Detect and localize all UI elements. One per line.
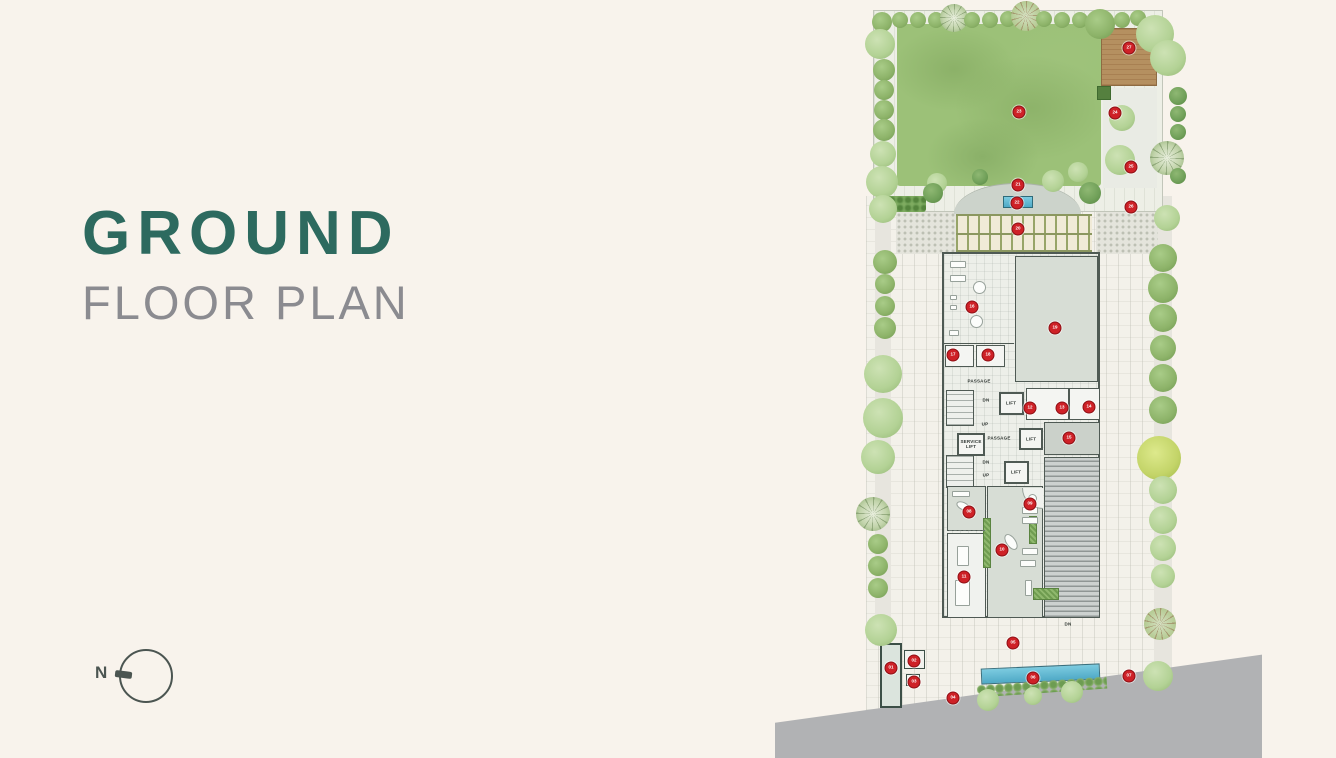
legend-marker: 13	[1056, 402, 1069, 415]
legend-marker: 07	[1123, 670, 1136, 683]
tree-icon	[1150, 535, 1176, 561]
title-line2: FLOOR PLAN	[82, 279, 410, 326]
tree-icon	[982, 12, 998, 28]
tree-icon	[923, 183, 943, 203]
room-label: DN	[1065, 621, 1072, 626]
gym-equipment	[950, 295, 957, 300]
tree-icon	[865, 29, 895, 59]
tree-icon	[1079, 182, 1101, 204]
tree-icon	[1149, 244, 1177, 272]
lounge-sofa	[952, 491, 970, 497]
tree-icon	[1149, 396, 1177, 424]
tree-icon	[1169, 87, 1187, 105]
lobby-sofa	[1022, 548, 1038, 555]
floor-plan: 0102030405060708091011121314151617181920…	[770, 0, 1290, 758]
room-label: DN	[983, 459, 990, 464]
tree-icon	[892, 12, 908, 28]
tree-icon	[875, 274, 895, 294]
legend-marker: 12	[1024, 402, 1037, 415]
tree-icon	[1154, 205, 1180, 231]
room-label: LIFT	[1011, 469, 1021, 474]
room-label: PASSAGE	[967, 378, 990, 383]
tree-icon	[1068, 162, 1088, 182]
legend-marker: 11	[958, 571, 971, 584]
lobby-console	[1025, 580, 1032, 596]
planter-box	[1097, 86, 1111, 100]
staircase-upper	[946, 390, 974, 426]
legend-marker: 08	[963, 506, 976, 519]
north-compass: N	[95, 646, 179, 706]
tree-icon	[873, 119, 895, 141]
tree-icon	[977, 689, 999, 711]
legend-marker: 16	[966, 301, 979, 314]
stone-paving-left	[896, 212, 956, 254]
treadmill	[950, 261, 966, 268]
gym-equipment	[950, 305, 957, 310]
pergola-beam	[956, 233, 1092, 235]
tree-icon	[1144, 608, 1176, 640]
legend-marker: 17	[947, 349, 960, 362]
office-table	[957, 546, 969, 566]
security-cabin	[880, 643, 902, 708]
legend-marker: 10	[996, 544, 1009, 557]
tree-icon	[1150, 40, 1186, 76]
tree-icon	[875, 296, 895, 316]
legend-marker: 27	[1123, 42, 1136, 55]
page-title: GROUND FLOOR PLAN	[82, 203, 410, 326]
gym-table	[973, 281, 986, 294]
room-label: UP	[983, 472, 990, 477]
legend-marker: 26	[1125, 201, 1138, 214]
legend-marker: 20	[1012, 223, 1025, 236]
tree-icon	[1149, 364, 1177, 392]
room-label: DN	[983, 397, 990, 402]
tree-icon	[868, 578, 888, 598]
legend-marker: 06	[1027, 672, 1040, 685]
tree-icon	[866, 166, 898, 198]
tree-icon	[1054, 12, 1070, 28]
tree-icon	[1143, 661, 1173, 691]
tree-icon	[873, 250, 897, 274]
gym-equipment	[949, 330, 959, 336]
legend-marker: 23	[1013, 106, 1026, 119]
tree-icon	[861, 440, 895, 474]
legend-marker: 24	[1109, 107, 1122, 120]
tree-icon	[863, 398, 903, 438]
legend-marker: 21	[1012, 179, 1025, 192]
tree-icon	[1170, 106, 1186, 122]
compass-needle-icon	[115, 670, 133, 679]
tree-icon	[1149, 476, 1177, 504]
tree-icon	[865, 614, 897, 646]
tree-icon	[1137, 436, 1181, 480]
legend-marker: 02	[908, 655, 921, 668]
entrance-pergola	[956, 214, 1092, 252]
legend-marker: 03	[908, 676, 921, 689]
wardrobe-line	[949, 526, 985, 531]
legend-marker: 01	[885, 662, 898, 675]
legend-marker: 25	[1125, 161, 1138, 174]
screen: GROUND FLOOR PLAN N	[0, 0, 1336, 758]
tree-icon	[1024, 687, 1042, 705]
room-partition	[1068, 388, 1070, 420]
tree-icon	[1061, 681, 1083, 703]
room-label: LIFT	[1026, 436, 1036, 441]
tree-icon	[1148, 273, 1178, 303]
legend-marker: 19	[1049, 322, 1062, 335]
tree-icon	[1149, 304, 1177, 332]
tree-icon	[1170, 124, 1186, 140]
room-label: SERVICE LIFT	[959, 439, 983, 449]
tree-icon	[1149, 506, 1177, 534]
tree-icon	[874, 317, 896, 339]
tree-icon	[964, 12, 980, 28]
tree-icon	[1150, 335, 1176, 361]
tree-icon	[869, 195, 897, 223]
tree-icon	[868, 534, 888, 554]
central-lawn	[897, 24, 1101, 186]
legend-marker: 18	[982, 349, 995, 362]
room-label: LIFT	[1006, 400, 1016, 405]
legend-marker: 09	[1024, 498, 1037, 511]
legend-marker: 04	[947, 692, 960, 705]
tree-icon	[864, 355, 902, 393]
treadmill	[950, 275, 966, 282]
north-label: N	[95, 663, 107, 683]
tree-icon	[870, 141, 896, 167]
tree-icon	[873, 59, 895, 81]
tree-icon	[1042, 170, 1064, 192]
planter-lobby-bottom	[1033, 588, 1059, 600]
tree-icon	[868, 556, 888, 576]
tree-icon	[1114, 12, 1130, 28]
tree-icon	[972, 169, 988, 185]
legend-marker: 15	[1063, 432, 1076, 445]
lobby-sofa	[1022, 517, 1038, 524]
tree-icon	[1170, 168, 1186, 184]
gym-table	[970, 315, 983, 328]
tree-icon	[856, 497, 890, 531]
office-counter	[955, 580, 970, 606]
tree-icon	[874, 80, 894, 100]
multipurpose-hall	[1015, 256, 1098, 382]
legend-marker: 05	[1007, 637, 1020, 650]
tree-icon	[1151, 564, 1175, 588]
legend-marker: 14	[1083, 401, 1096, 414]
legend-marker: 22	[1011, 197, 1024, 210]
tree-icon	[910, 12, 926, 28]
lobby-sofa	[1020, 560, 1036, 567]
stone-paving-right	[1096, 212, 1158, 254]
tree-icon	[874, 100, 894, 120]
room-label: PASSAGE	[987, 435, 1010, 440]
tree-icon	[1085, 9, 1115, 39]
room-label: UP	[982, 421, 989, 426]
title-line1: GROUND	[82, 203, 410, 265]
staircase-lower	[946, 455, 974, 488]
tree-icon	[1036, 11, 1052, 27]
